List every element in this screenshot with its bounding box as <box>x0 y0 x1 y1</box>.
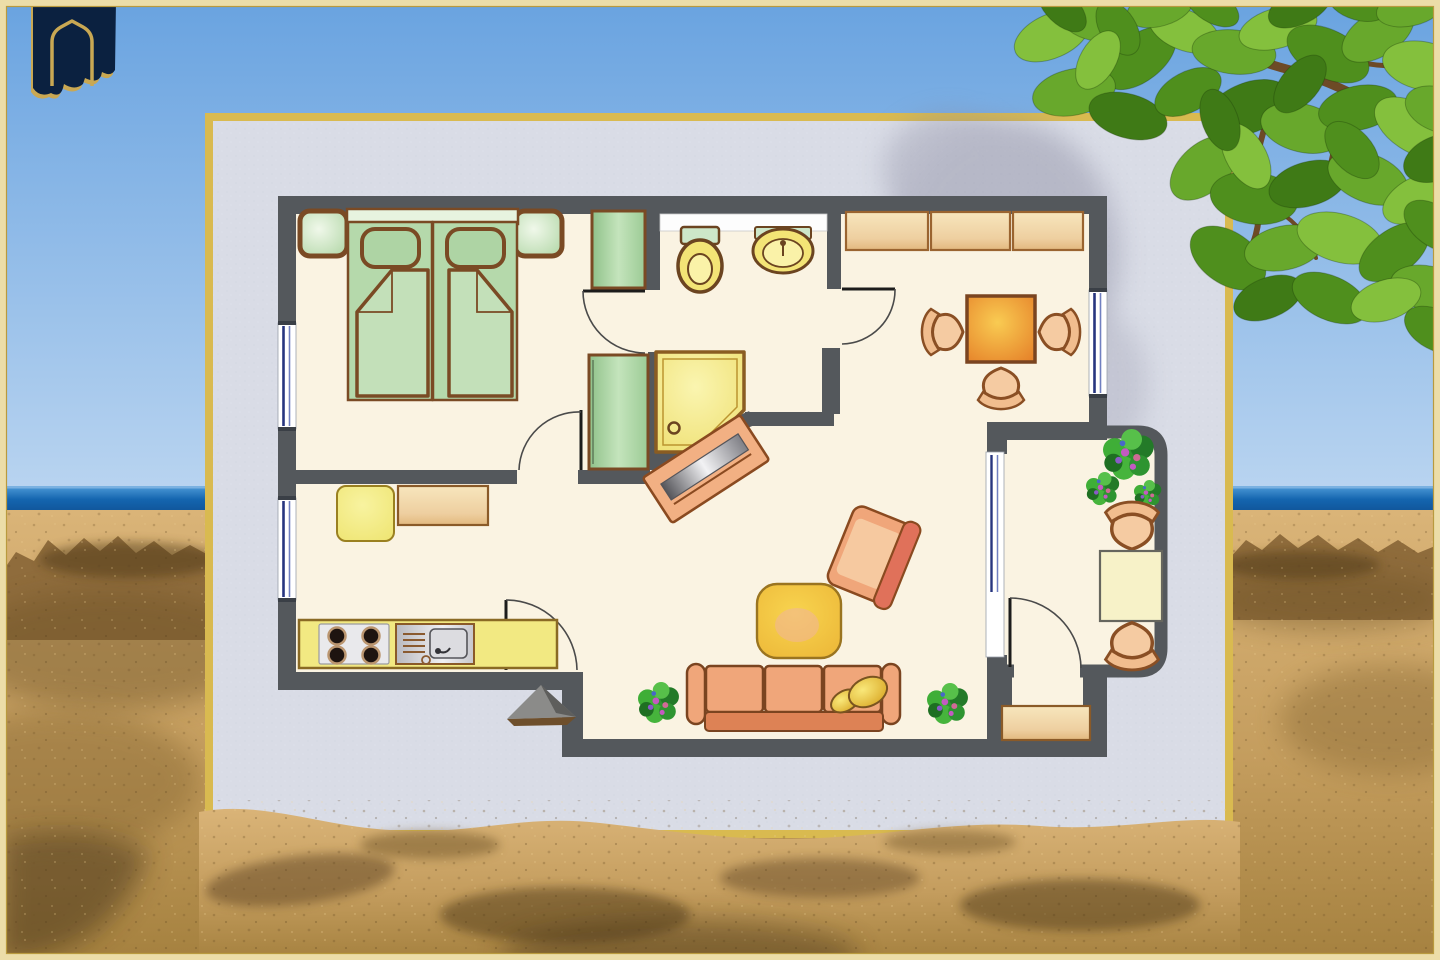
pillow-right <box>447 229 504 267</box>
sofa-cushion-2 <box>765 666 822 712</box>
screenshot <box>0 0 1440 960</box>
sofa-base <box>705 712 883 731</box>
wall-cabinet-2 <box>931 212 1010 250</box>
floor-plan <box>278 196 1167 757</box>
dining-table <box>967 296 1035 362</box>
kitchen-sideboard <box>398 486 488 525</box>
wall-cabinet-3 <box>1013 212 1083 250</box>
sofa-arm-left <box>687 664 705 724</box>
window-dining <box>1089 288 1107 398</box>
balcony-wall-gap <box>1014 663 1080 678</box>
nightstand-left <box>300 211 347 256</box>
balcony-table <box>1100 551 1162 621</box>
alcove-cabinet <box>1002 706 1090 740</box>
window-kitchen <box>278 496 296 602</box>
window-bedroom <box>278 321 296 431</box>
sofa <box>687 664 900 731</box>
sofa-cushion-1 <box>706 666 763 712</box>
coffee-table-sheen <box>775 608 819 642</box>
foreground-sand <box>199 800 1241 960</box>
green-cabinet-top <box>592 211 645 288</box>
toilet <box>678 227 722 292</box>
storage-alcove <box>1002 706 1090 740</box>
balcony-glass-wall <box>986 452 1004 657</box>
nightstand-right <box>515 211 562 256</box>
wall-cabinet-1 <box>846 212 928 250</box>
kitchen-sink <box>396 624 474 664</box>
stove <box>319 624 389 664</box>
pillow-left <box>362 229 419 267</box>
washbasin <box>753 227 813 273</box>
green-wardrobe <box>589 355 648 469</box>
kitchen-side-table <box>337 486 394 541</box>
